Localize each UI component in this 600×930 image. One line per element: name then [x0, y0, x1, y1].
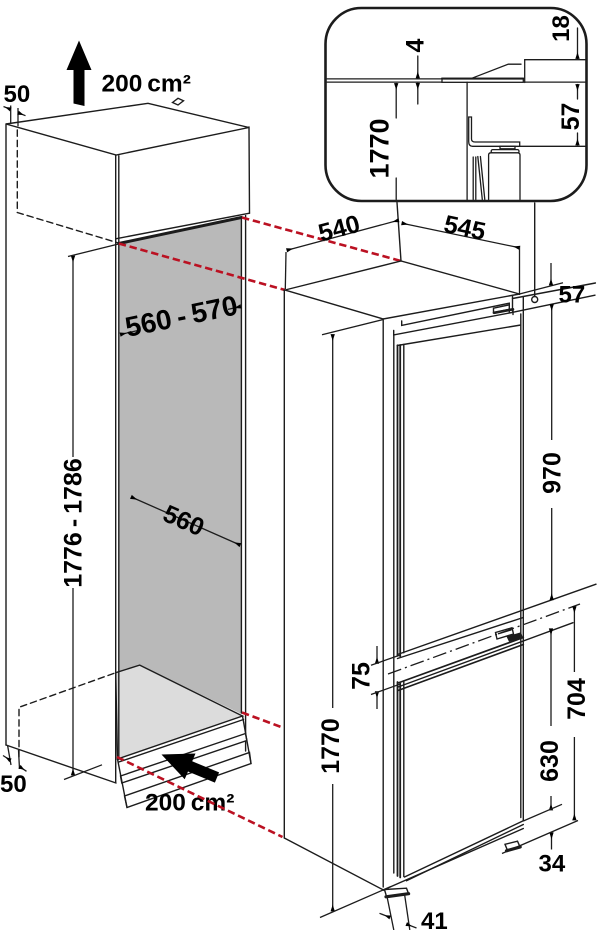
svg-text:18: 18: [548, 15, 575, 42]
svg-text:970: 970: [539, 452, 567, 494]
svg-text:34: 34: [539, 851, 566, 878]
svg-text:704: 704: [563, 678, 591, 720]
svg-text:50: 50: [0, 771, 27, 798]
svg-text:1770: 1770: [365, 118, 395, 178]
svg-text:57: 57: [559, 282, 586, 309]
svg-text:75: 75: [348, 662, 376, 690]
svg-text:545: 545: [441, 210, 488, 246]
svg-text:1770: 1770: [317, 718, 345, 774]
svg-text:630: 630: [536, 740, 564, 782]
svg-text:57: 57: [557, 103, 585, 131]
svg-text:41: 41: [421, 908, 448, 930]
svg-text:540: 540: [315, 210, 363, 248]
svg-text:50: 50: [4, 81, 31, 108]
svg-text:4: 4: [402, 38, 430, 52]
svg-text:200 cm²: 200 cm²: [102, 71, 191, 98]
svg-text:1776 - 1786: 1776 - 1786: [60, 458, 88, 588]
